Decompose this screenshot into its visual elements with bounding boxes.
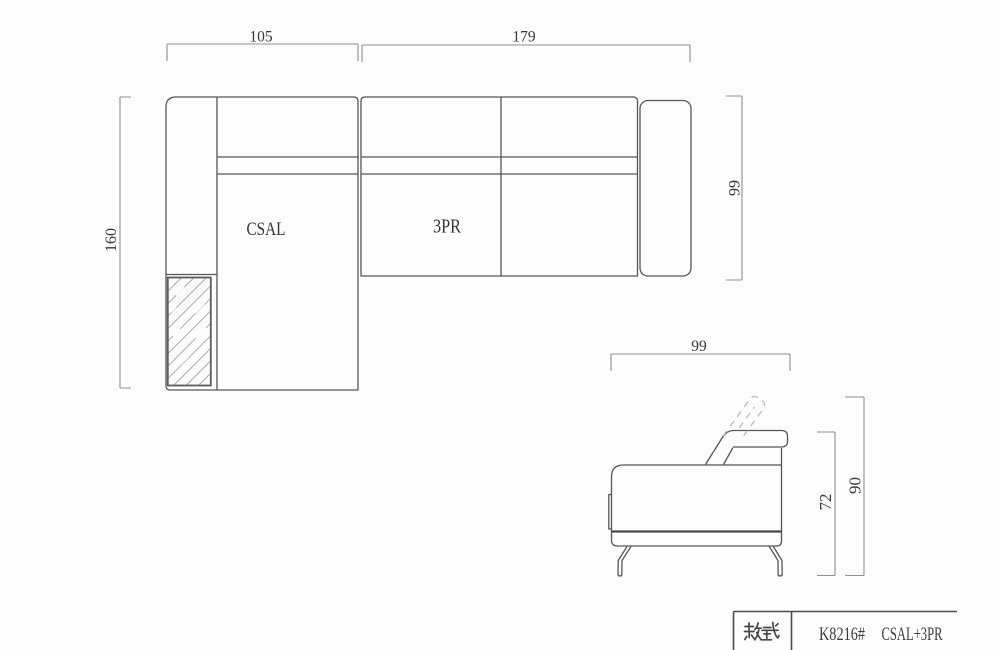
svg-text:CSAL: CSAL <box>247 219 286 240</box>
svg-text:CSAL+3PR: CSAL+3PR <box>882 625 943 645</box>
svg-text:72: 72 <box>816 494 835 511</box>
svg-text:99: 99 <box>727 180 744 196</box>
svg-text:105: 105 <box>249 29 273 46</box>
svg-text:160: 160 <box>103 228 120 252</box>
svg-text:K8216#: K8216# <box>819 625 865 645</box>
svg-text:179: 179 <box>512 29 536 46</box>
svg-text:99: 99 <box>691 338 707 355</box>
svg-text:3PR: 3PR <box>433 216 462 238</box>
svg-text:90: 90 <box>846 477 865 494</box>
